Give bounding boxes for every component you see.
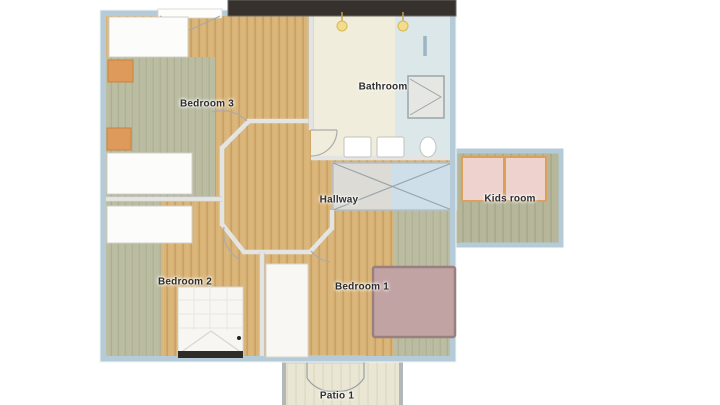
- dresser: [107, 153, 192, 194]
- room-label-bedroom-3: Bedroom 3: [180, 99, 234, 110]
- dresser: [107, 206, 192, 243]
- nightstand: [108, 60, 133, 82]
- shower-cabin: [408, 76, 444, 118]
- floor-plan: Bedroom 3 Bathroom Hallway Kids room Bed…: [0, 0, 720, 405]
- room-label-bedroom-1: Bedroom 1: [335, 282, 389, 293]
- double-bed: [178, 287, 243, 358]
- room-label-kids-room: Kids room: [484, 194, 535, 205]
- sink: [377, 137, 404, 157]
- nightstand: [107, 128, 131, 150]
- rug: [373, 267, 455, 337]
- room-label-patio-1: Patio 1: [320, 391, 354, 402]
- toilet: [420, 137, 436, 157]
- floor-plan-drawing: [0, 0, 720, 405]
- room-label-bathroom: Bathroom: [359, 82, 408, 93]
- wardrobe: [109, 17, 188, 57]
- sink: [344, 137, 371, 157]
- room-label-hallway: Hallway: [320, 195, 359, 206]
- room-label-bedroom-2: Bedroom 2: [158, 277, 212, 288]
- headboard: [178, 351, 243, 358]
- single-bed: [266, 264, 308, 357]
